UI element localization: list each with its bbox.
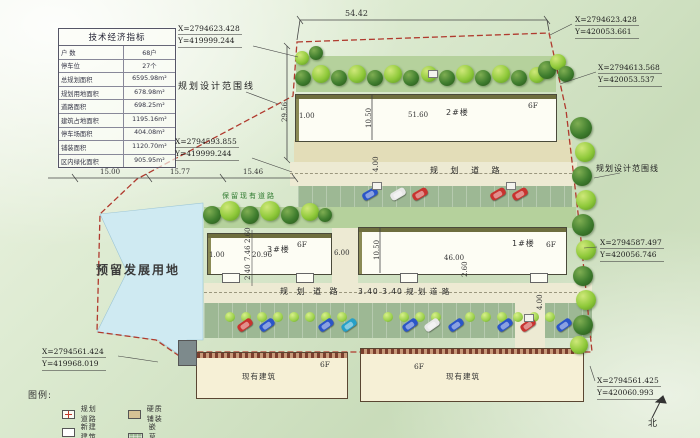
coordinate-y: Y=420060.993 [597,387,661,399]
tree-icon [220,201,240,221]
dim-b3-length: 20.96 [252,252,272,260]
coordinate-y: Y=420053.537 [598,74,662,86]
table-row-value: 678.98m² [124,87,175,100]
tree-icon [312,65,330,83]
coordinate-x: X=2794623.428 [575,14,639,26]
tree-icon [383,312,393,322]
tree-icon [309,46,323,60]
car-icon [423,317,441,333]
coordinate-x: X=2794561.425 [597,375,661,387]
tree-icon [301,203,319,221]
tree-icon [295,51,309,65]
utility-box-icon [428,70,438,78]
tree-icon [570,336,588,354]
table-row-label: 停车位 [59,60,124,73]
tree-icon [337,312,347,322]
coordinate-x: X=2794587.497 [600,237,664,249]
dim-gap-6: 6.00 [334,250,350,258]
legend-item-label: 硬质铺装 [147,404,164,424]
dim-seg-c: 15.46 [243,169,263,177]
building2-label: 2#楼 [446,107,469,118]
table-row-label: 停车场面积 [59,128,124,141]
dim-left-height: 29.56 [282,102,290,122]
tree-icon [241,206,259,224]
table-row-value: 6595.98m² [124,73,175,86]
tree-icon [203,206,221,224]
car-icon [236,317,254,333]
new-building-symbol-icon [62,428,75,437]
tree-icon [295,70,311,86]
utility-box-icon [506,182,516,190]
table-row-label: 户 数 [59,46,124,59]
tree-icon [573,266,593,286]
table-row: 停车位27个 [59,60,175,74]
table-row-value: 905.95m² [124,155,175,168]
road-label-upper: 规 划 道 路 [430,167,505,176]
coordinate-y: Y=419999.244 [178,35,242,47]
existing-right-label: 现有建筑 [446,371,480,382]
tree-icon [403,70,419,86]
tree-icon [492,65,510,83]
dim-top-width: 54.42 [345,10,368,19]
legend: 图例: 规划道路新建建筑硬质铺装嵌草砖 [28,388,52,401]
tree-icon [572,214,594,236]
dim-v3: 2.40 [245,264,253,280]
boundary-label-right: 规划设计范围线 [596,165,659,174]
tree-icon [260,201,280,221]
coordinate-x: X=2794593.855 [175,136,239,148]
table-row: 总规划面积6595.98m² [59,73,175,87]
legend-title: 图例: [28,388,52,401]
hard-paving-symbol-icon [128,410,141,419]
building3-floors: 6F [297,240,307,249]
car-icon [489,187,507,202]
table-rows: 户 数68户停车位27个总规划面积6595.98m²规划用地面积678.98m²… [59,46,175,167]
road-label-lower-right: 3.40 3.40 规 划 道 路 [358,288,450,296]
coordinate-callout-top-left: X=2794623.428 Y=419999.244 [178,23,242,48]
tree-icon [318,208,332,222]
coordinate-callout-right-mid: X=2794587.497 Y=420056.746 [600,237,664,262]
car-icon [411,187,429,202]
tree-icon [576,240,596,260]
table-row: 户 数68户 [59,46,175,60]
coordinate-y: Y=420056.746 [600,249,664,261]
tree-icon [513,312,523,322]
table-row-value: 404.08m² [124,128,175,141]
tree-icon [465,312,475,322]
tree-icon [456,65,474,83]
legend-item: 嵌草砖 [128,422,164,438]
tree-icon [384,65,402,83]
table-title: 技术经济指标 [59,29,175,46]
building2-floors: 6F [528,101,538,110]
dim-seg-b: 15.77 [170,169,190,177]
coordinate-callout-top-right: X=2794623.428 Y=420053.661 [575,14,639,39]
table-row-label: 铺装面积 [59,141,124,154]
tree-icon [331,70,347,86]
dim-b1-2-60: 2.60 [462,261,470,277]
tree-icon [573,315,593,335]
table-row: 规划用地面积678.98m² [59,87,175,101]
dim-road-lower-width: 4.00 [537,294,545,310]
car-icon [447,317,465,333]
tree-icon [511,70,527,86]
site-plan-drawing: 技术经济指标 户 数68户停车位27个总规划面积6595.98m²规划用地面积6… [0,0,700,438]
dim-road-upper-width: 4.00 [373,156,381,172]
tree-icon [570,117,592,139]
dim-v1: 2.60 [245,227,253,243]
tree-icon [558,66,574,82]
tree-icon [225,312,235,322]
table-row-value: 1195.16m² [124,114,175,127]
dim-b2-depth: 10.50 [366,108,374,128]
building1-label: 1#楼 [512,238,535,249]
legend-item: 规划道路 [62,404,98,424]
existing-right-floors: 6F [414,362,424,371]
utility-box-icon [372,182,382,190]
coordinate-callout-bottom-left: X=2794561.424 Y=419968.019 [42,346,106,371]
tree-icon [576,190,596,210]
tree-icon [545,312,555,322]
coordinate-callout-bottom-right: X=2794561.425 Y=420060.993 [597,375,661,400]
coordinate-x: X=2794613.568 [598,62,662,74]
reserved-land-label: 预留发展用地 [96,264,180,277]
dim-b1-depth: 10.50 [374,240,382,260]
tech-economic-table: 技术经济指标 户 数68户停车位27个总规划面积6595.98m²规划用地面积6… [58,28,176,168]
table-row: 区内绿化面积905.95m² [59,155,175,168]
tree-icon [348,65,366,83]
table-row-label: 区内绿化面积 [59,155,124,168]
legend-item: 新建建筑 [62,422,98,438]
coordinate-x: X=2794561.424 [42,346,106,358]
road-symbol-icon [62,410,75,419]
tree-icon [475,70,491,86]
tree-icon [576,290,596,310]
car-icon [389,187,407,202]
table-row-value: 27个 [124,60,175,73]
coordinate-y: Y=419968.019 [42,358,106,370]
boundary-label-top: 规划设计范围线 [178,83,255,93]
utility-box-icon [524,314,534,322]
existing-left-floors: 6F [320,360,330,369]
table-row-value: 1120.70m² [124,141,175,154]
legend-item-label: 规划道路 [81,404,98,424]
road-label-lower-left: 规 划 道 路 [280,288,341,297]
legend-item-label: 嵌草砖 [149,422,164,438]
tree-icon [439,70,455,86]
coordinate-y: Y=420053.661 [575,26,639,38]
dim-seg-a: 15.00 [100,169,120,177]
table-row-value: 68户 [124,46,175,59]
dim-b2-length: 51.60 [408,112,428,120]
existing-left-label: 现有建筑 [242,371,276,382]
car-icon [317,317,335,333]
legend-item: 硬质铺装 [128,404,164,424]
building1-floors: 6F [546,240,556,249]
tree-icon [289,312,299,322]
car-icon [555,317,573,333]
table-row-value: 698.25m² [124,100,175,113]
table-row: 停车场面积404.08m² [59,128,175,142]
table-row-label: 规划用地面积 [59,87,124,100]
dim-b3-gap: 1.00 [209,252,225,260]
tree-icon [281,206,299,224]
legend-item-label: 新建建筑 [81,422,98,438]
keep-road-label: 保留现有道路 [222,193,276,201]
coordinate-callout-right-upper: X=2794613.568 Y=420053.537 [598,62,662,87]
table-row-label: 道路面积 [59,100,124,113]
tree-icon [367,70,383,86]
north-label: 北 [648,420,657,430]
tree-icon [273,312,283,322]
table-row-label: 建筑占地面积 [59,114,124,127]
coordinate-y: Y=419999.244 [175,148,239,160]
grass-brick-symbol-icon [128,433,143,438]
table-row-label: 总规划面积 [59,73,124,86]
dim-b2-gap: 1.00 [299,113,315,121]
tree-icon [575,142,595,162]
table-row: 道路面积698.25m² [59,100,175,114]
dim-v2: 7.46 [245,245,253,261]
table-row: 铺装面积1120.70m² [59,141,175,155]
tree-icon [305,312,315,322]
table-row: 建筑占地面积1195.16m² [59,114,175,128]
tree-icon [572,166,592,186]
tree-icon [481,312,491,322]
coordinate-callout-mid-left: X=2794593.855 Y=419999.244 [175,136,239,161]
coordinate-x: X=2794623.428 [178,23,242,35]
